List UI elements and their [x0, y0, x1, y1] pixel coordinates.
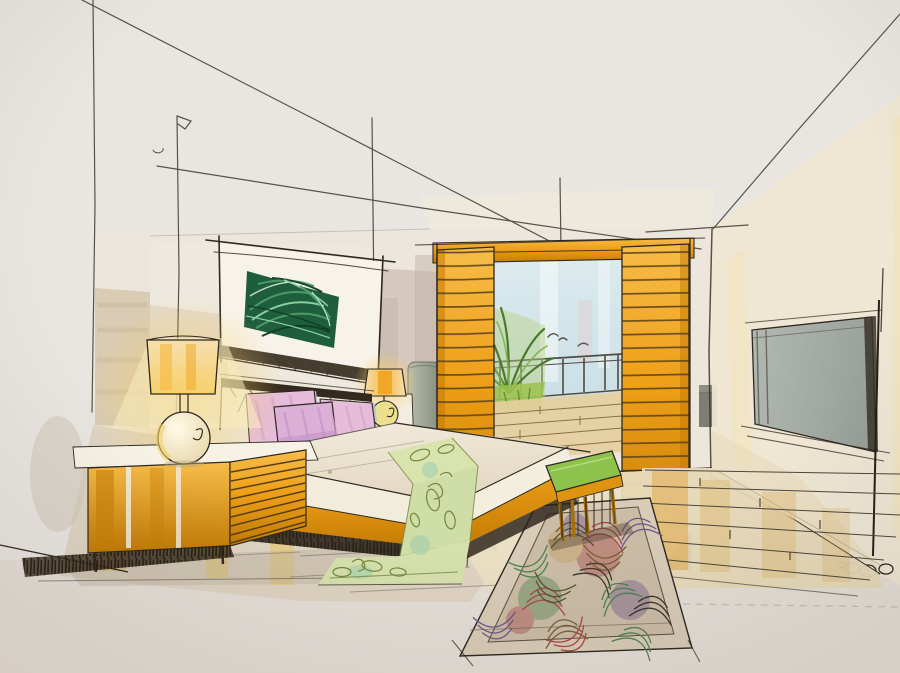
bedroom-sketch: back wall right wall with recessed gray … [0, 0, 900, 673]
photo-vignette [0, 0, 900, 673]
sketch-photo: Two-point perspective interior rendering… [0, 0, 900, 673]
